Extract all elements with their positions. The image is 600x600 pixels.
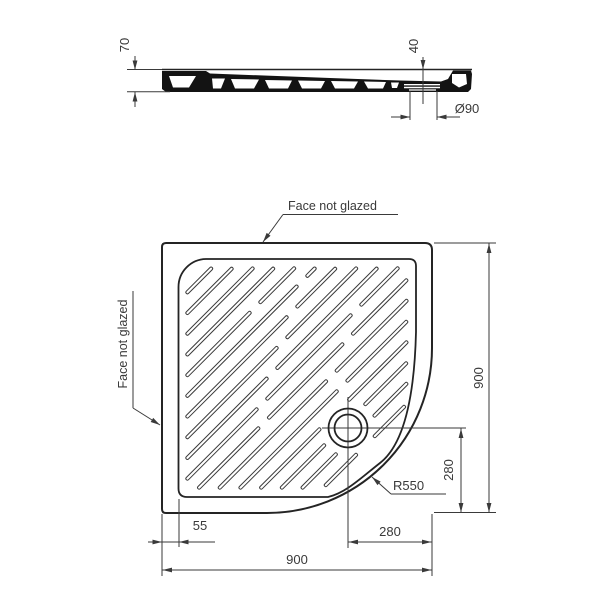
overall-depth-dimension: 900 xyxy=(471,243,489,513)
rim-width-dimension: 55 xyxy=(148,518,215,542)
tray-inner-rim xyxy=(178,259,416,497)
face-not-glazed-top-leader: Face not glazed xyxy=(263,199,398,242)
dim-900-right-label: 900 xyxy=(471,367,486,389)
dim-280-right-label: 280 xyxy=(441,459,456,481)
overall-width-dimension: 900 xyxy=(162,552,432,570)
dimension-arrowheads xyxy=(133,60,492,572)
plan-view: Face not glazed Face not glazed R550 55 xyxy=(116,199,496,576)
section-depth-dimension: 40 xyxy=(406,39,423,104)
drain-offset-horizontal-dimension: 280 xyxy=(348,524,432,542)
face-not-glazed-left-label: Face not glazed xyxy=(116,299,130,388)
technical-drawing-page: 70 40 Ø90 Fac xyxy=(0,0,600,600)
dim-55-label: 55 xyxy=(193,518,207,533)
section-view: 70 40 Ø90 xyxy=(117,38,479,120)
dim-diameter-label: Ø90 xyxy=(455,101,480,116)
dim-280-bottom-label: 280 xyxy=(379,524,401,539)
shower-tray-technical-drawing: 70 40 Ø90 Fac xyxy=(0,0,600,600)
dim-70-label: 70 xyxy=(117,38,132,52)
section-profile xyxy=(162,71,472,93)
anti-slip-ribs xyxy=(187,268,406,487)
face-not-glazed-left-leader: Face not glazed xyxy=(116,291,160,425)
drain-offset-vertical-dimension: 280 xyxy=(441,428,461,513)
face-not-glazed-top-label: Face not glazed xyxy=(288,199,377,213)
radius-r550-label: R550 xyxy=(393,478,424,493)
radius-leader: R550 xyxy=(372,477,446,494)
dim-900-bottom-label: 900 xyxy=(286,552,308,567)
dim-40-label: 40 xyxy=(406,39,421,53)
